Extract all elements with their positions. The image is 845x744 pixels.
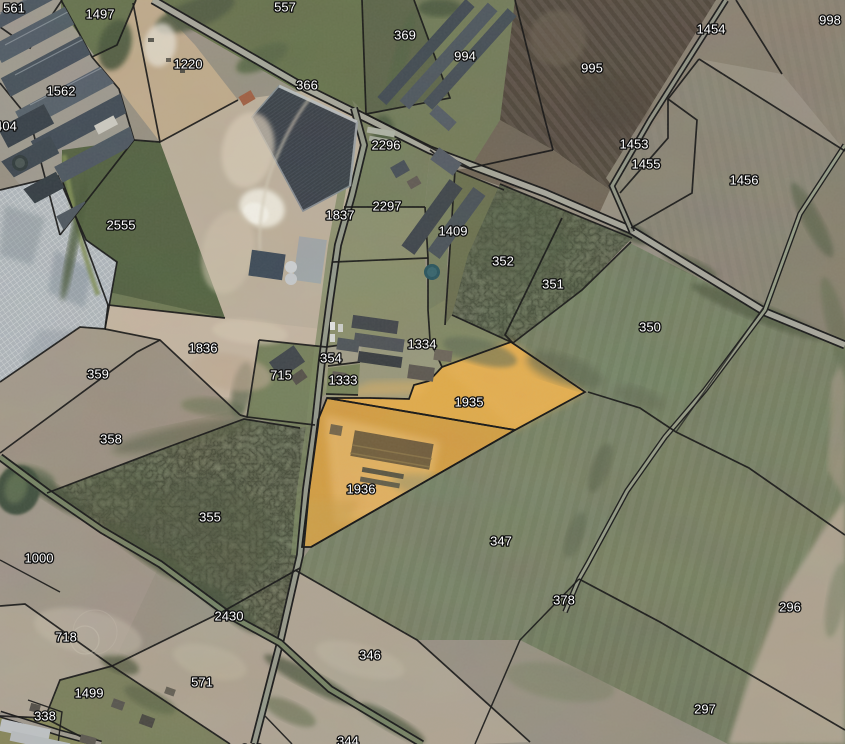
svg-text:369: 369 [394,28,416,43]
svg-text:366: 366 [296,78,318,93]
svg-text:338: 338 [34,709,56,724]
svg-text:1836: 1836 [189,341,218,356]
svg-text:296: 296 [779,600,801,615]
svg-text:346: 346 [359,648,381,663]
svg-text:354: 354 [320,351,342,366]
svg-text:347: 347 [490,534,512,549]
svg-text:1334: 1334 [408,337,437,352]
svg-text:1409: 1409 [439,224,468,239]
svg-text:1456: 1456 [730,173,759,188]
svg-text:351: 351 [542,277,564,292]
svg-text:1935: 1935 [455,395,484,410]
svg-text:995: 995 [581,61,603,76]
svg-text:718: 718 [55,630,77,645]
svg-text:994: 994 [454,49,476,64]
svg-text:561: 561 [3,1,25,16]
svg-text:2555: 2555 [107,218,136,233]
svg-text:344: 344 [337,734,359,744]
svg-text:1936: 1936 [347,482,376,497]
svg-text:352: 352 [492,254,514,269]
svg-text:2297: 2297 [373,199,402,214]
svg-text:2430: 2430 [215,609,244,624]
svg-text:1499: 1499 [75,686,104,701]
svg-text:404: 404 [0,119,17,134]
svg-text:1220: 1220 [174,57,203,72]
svg-text:1455: 1455 [632,157,661,172]
svg-text:378: 378 [553,593,575,608]
svg-text:2296: 2296 [372,138,401,153]
svg-text:297: 297 [694,702,716,717]
svg-text:358: 358 [100,432,122,447]
svg-text:1454: 1454 [697,22,726,37]
svg-text:1453: 1453 [620,137,649,152]
svg-text:359: 359 [87,367,109,382]
svg-text:557: 557 [274,0,296,15]
svg-text:1562: 1562 [47,84,76,99]
svg-text:1497: 1497 [86,7,115,22]
svg-text:998: 998 [819,13,841,28]
svg-text:1837: 1837 [326,208,355,223]
svg-text:355: 355 [199,510,221,525]
svg-text:571: 571 [191,675,213,690]
svg-text:1333: 1333 [329,373,358,388]
svg-text:1000: 1000 [25,551,54,566]
svg-text:350: 350 [639,320,661,335]
svg-text:715: 715 [270,368,292,383]
